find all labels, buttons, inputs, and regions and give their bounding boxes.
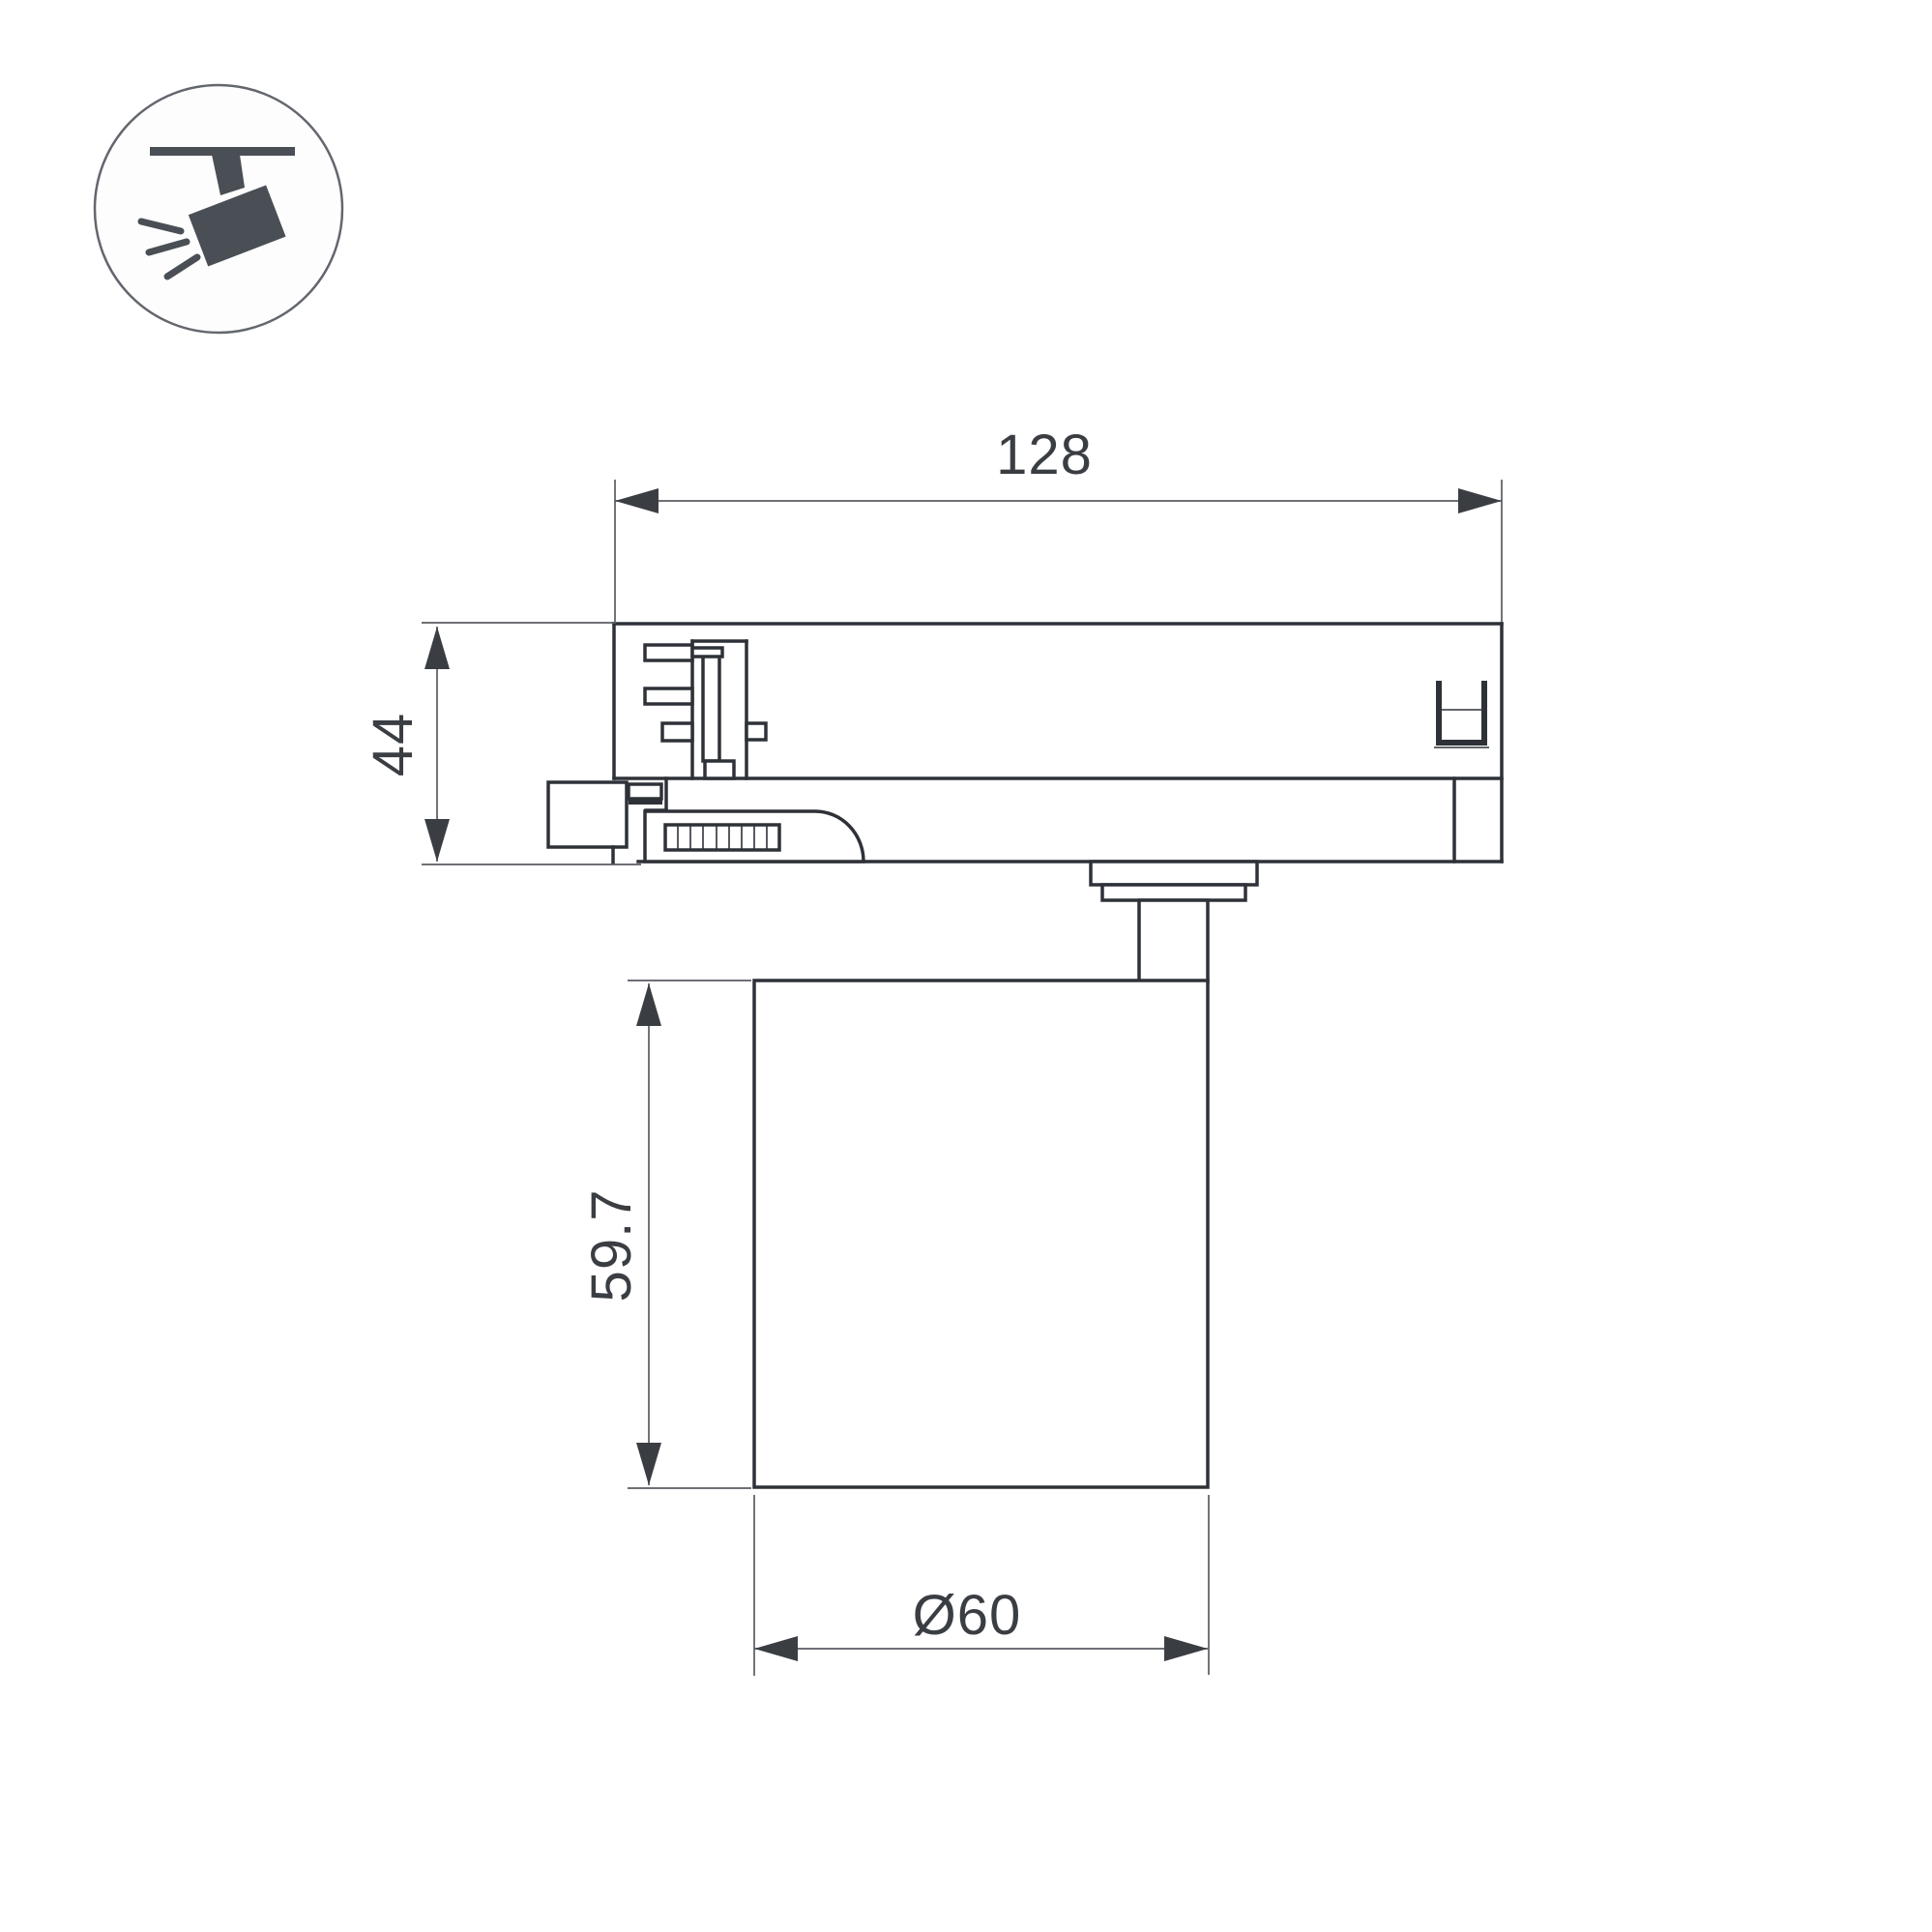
arrowhead-right: [1164, 1636, 1208, 1661]
arrowhead-left: [615, 488, 659, 513]
technical-drawing-canvas: 128 44 59.7 Ø60: [0, 0, 1932, 1932]
drawing-svg: 128 44 59.7 Ø60: [0, 0, 1932, 1932]
dimension-label-lamp-diameter: Ø60: [913, 1584, 1022, 1647]
dimension-lamp-height: 59.7: [580, 981, 751, 1488]
dimension-label-adapter-height: 44: [362, 713, 424, 777]
contact-pin-foot: [705, 761, 734, 778]
track-adapter-housing: [548, 624, 1502, 863]
icon-track-bar: [150, 147, 295, 156]
swivel-disc-lower: [1102, 885, 1245, 900]
lamp-assembly: [754, 862, 1257, 1487]
contact-prong-lower: [662, 723, 692, 741]
arrowhead-right: [1458, 488, 1502, 513]
latch-slot: [629, 784, 661, 799]
arrowhead-top: [636, 983, 661, 1026]
arrowhead-left: [754, 1636, 798, 1661]
contact-head: [645, 641, 766, 778]
dimension-adapter-width: 128: [615, 424, 1502, 622]
contact-prong-middle: [645, 688, 692, 704]
arrowhead-bottom: [424, 819, 450, 862]
arrowhead-top: [424, 627, 450, 669]
lamp-body-cylinder: [754, 981, 1208, 1487]
track-spotlight-icon: [95, 85, 342, 333]
dimension-label-lamp-height: 59.7: [580, 1189, 643, 1303]
arrowhead-bottom: [636, 1443, 661, 1485]
end-clip-walls: [1439, 681, 1484, 743]
slider-grip: [665, 825, 779, 850]
contact-pin-cap: [692, 648, 722, 657]
contact-prong-right: [746, 723, 766, 740]
dimension-lamp-diameter: Ø60: [754, 1495, 1209, 1676]
contact-prong-upper: [645, 645, 692, 660]
contact-center-pin: [703, 656, 719, 761]
lamp-stem: [1139, 900, 1208, 981]
end-clip: [1434, 681, 1489, 747]
dimension-label-adapter-width: 128: [996, 424, 1093, 486]
swivel-disc-upper: [1091, 862, 1257, 885]
latch-box: [548, 782, 627, 847]
